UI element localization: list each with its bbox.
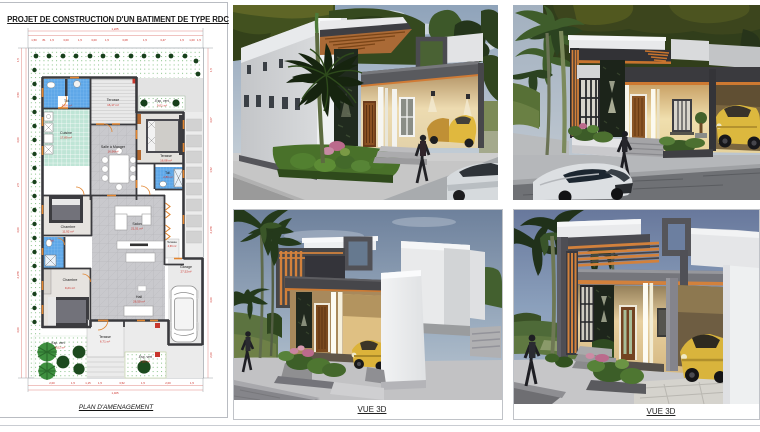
svg-text:1,5: 1,5 xyxy=(143,38,147,42)
svg-text:3,00: 3,00 xyxy=(16,327,20,333)
svg-text:3,52: 3,52 xyxy=(119,381,125,385)
svg-text:3,00: 3,00 xyxy=(16,137,20,143)
svg-text:11,92 m²: 11,92 m² xyxy=(62,230,74,234)
svg-text:Terosse: Terosse xyxy=(107,98,120,102)
svg-text:1,5: 1,5 xyxy=(141,381,145,385)
svg-text:1,5: 1,5 xyxy=(78,38,82,42)
svg-text:3,00: 3,00 xyxy=(63,38,69,42)
svg-text:3,08: 3,08 xyxy=(122,38,128,42)
svg-text:3,07: 3,07 xyxy=(209,117,213,123)
svg-text:16,08 m²: 16,08 m² xyxy=(160,159,172,163)
svg-text:1,00: 1,00 xyxy=(189,38,195,42)
svg-text:Salle à Manger: Salle à Manger xyxy=(101,145,126,149)
svg-text:1,405: 1,405 xyxy=(112,391,119,395)
svg-text:2,00: 2,00 xyxy=(49,381,55,385)
svg-text:16,96m²: 16,96m² xyxy=(107,150,118,154)
svg-text:3,47: 3,47 xyxy=(160,38,166,42)
svg-text:Toil.: Toil. xyxy=(50,239,55,243)
svg-text:1,225: 1,225 xyxy=(112,27,119,31)
svg-text:2,80 m²: 2,80 m² xyxy=(163,175,173,179)
svg-text:1,50: 1,50 xyxy=(31,38,37,42)
svg-text:2,00: 2,00 xyxy=(165,381,171,385)
svg-text:17,80 m²: 17,80 m² xyxy=(60,136,72,140)
svg-text:Chambre: Chambre xyxy=(61,225,76,229)
svg-text:2,378: 2,378 xyxy=(209,226,213,233)
svg-text:1,5: 1,5 xyxy=(105,38,109,42)
svg-text:81: 81 xyxy=(42,38,46,42)
svg-text:1,52: 1,52 xyxy=(209,167,213,173)
svg-text:.Esp. vert: .Esp. vert xyxy=(138,355,152,359)
svg-text:2,00: 2,00 xyxy=(209,352,213,358)
svg-text:1,15: 1,15 xyxy=(85,381,91,385)
svg-text:Toil.: Toil. xyxy=(64,99,70,103)
svg-text:9,01 m²: 9,01 m² xyxy=(157,104,167,108)
svg-text:9,21 m²: 9,21 m² xyxy=(65,286,75,290)
svg-text:.Esp. vert.: .Esp. vert. xyxy=(154,99,169,103)
svg-text:4,66 m²: 4,66 m² xyxy=(168,244,177,248)
svg-text:5,06 m²: 5,06 m² xyxy=(62,104,72,108)
svg-text:1,5: 1,5 xyxy=(209,68,213,72)
svg-text:Terasse: Terasse xyxy=(99,335,111,339)
svg-text:3,00: 3,00 xyxy=(16,227,20,233)
svg-text:.Esp. vert.: .Esp. vert. xyxy=(51,341,66,345)
svg-text:Terasse: Terasse xyxy=(167,240,177,244)
svg-text:27,52m²: 27,52m² xyxy=(180,270,191,274)
svg-text:16,17 m²: 16,17 m² xyxy=(107,103,119,107)
svg-text:1,5: 1,5 xyxy=(197,38,201,42)
svg-text:8,02 m²: 8,02 m² xyxy=(55,346,65,350)
svg-text:1,5: 1,5 xyxy=(190,381,194,385)
svg-text:Garage: Garage xyxy=(180,265,192,269)
svg-text:1,5: 1,5 xyxy=(16,58,20,62)
svg-text:3,50: 3,50 xyxy=(16,92,20,98)
svg-text:1,5: 1,5 xyxy=(50,38,54,42)
svg-text:26,50 m²: 26,50 m² xyxy=(133,300,145,304)
svg-text:Salon: Salon xyxy=(132,222,141,226)
svg-text:3,00: 3,00 xyxy=(91,38,97,42)
svg-text:Terasse: Terasse xyxy=(160,154,172,158)
svg-text:7,50 m²: 7,50 m² xyxy=(140,360,150,364)
svg-text:2,378: 2,378 xyxy=(16,271,20,278)
svg-text:1,5: 1,5 xyxy=(180,38,184,42)
svg-text:Cuisine: Cuisine xyxy=(60,131,72,135)
svg-text:1,5: 1,5 xyxy=(98,381,102,385)
svg-text:21,51 m²: 21,51 m² xyxy=(131,227,143,231)
svg-text:Chambre: Chambre xyxy=(63,278,78,282)
svg-text:Hall: Hall xyxy=(136,295,142,299)
svg-text:3,00: 3,00 xyxy=(209,297,213,303)
svg-text:6,71 m²: 6,71 m² xyxy=(100,340,110,344)
svg-text:2,5: 2,5 xyxy=(16,183,20,187)
svg-text:1,5: 1,5 xyxy=(71,381,75,385)
